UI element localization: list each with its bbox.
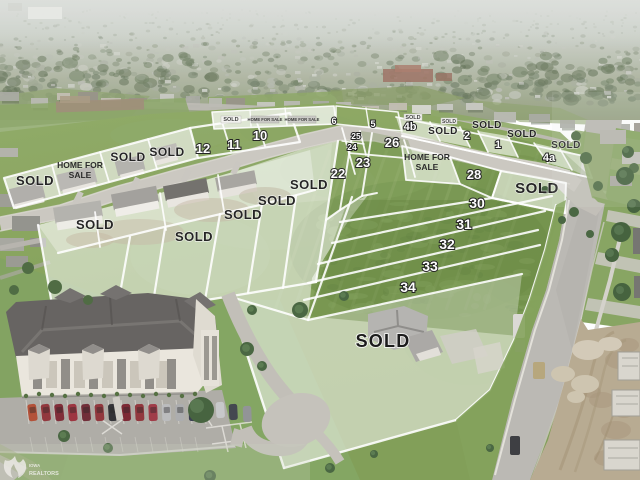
svg-text:IOWA: IOWA [29, 463, 40, 468]
svg-text:REALTORS: REALTORS [29, 471, 59, 477]
